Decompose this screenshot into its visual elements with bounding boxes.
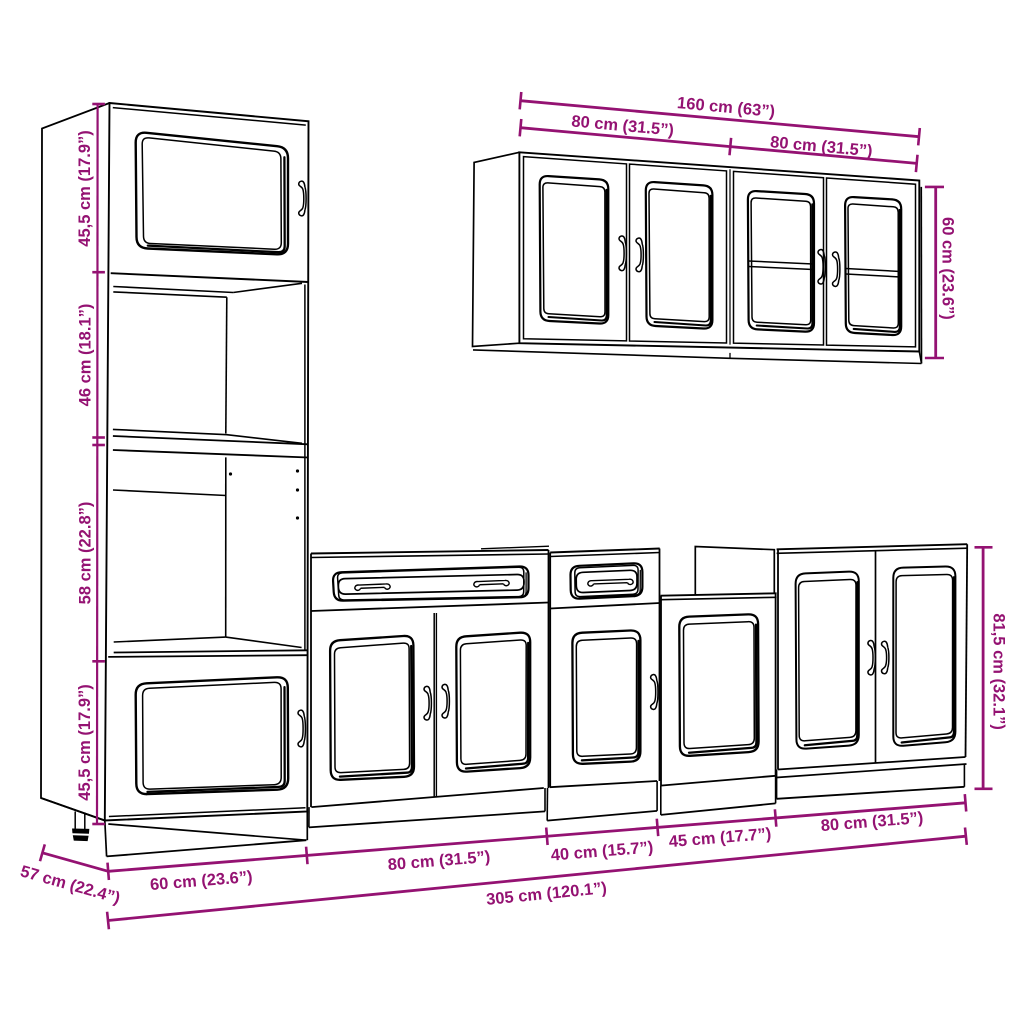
svg-text:60 cm (23.6”): 60 cm (23.6”) — [938, 217, 956, 320]
svg-text:46 cm (18.1”): 46 cm (18.1”) — [77, 304, 95, 407]
svg-text:45,5 cm (17.9”): 45,5 cm (17.9”) — [76, 130, 94, 246]
svg-text:81,5 cm (32.1”): 81,5 cm (32.1”) — [990, 613, 1008, 729]
svg-text:58 cm (22.8”): 58 cm (22.8”) — [76, 502, 94, 605]
svg-text:45,5 cm (17.9”): 45,5 cm (17.9”) — [76, 684, 94, 800]
